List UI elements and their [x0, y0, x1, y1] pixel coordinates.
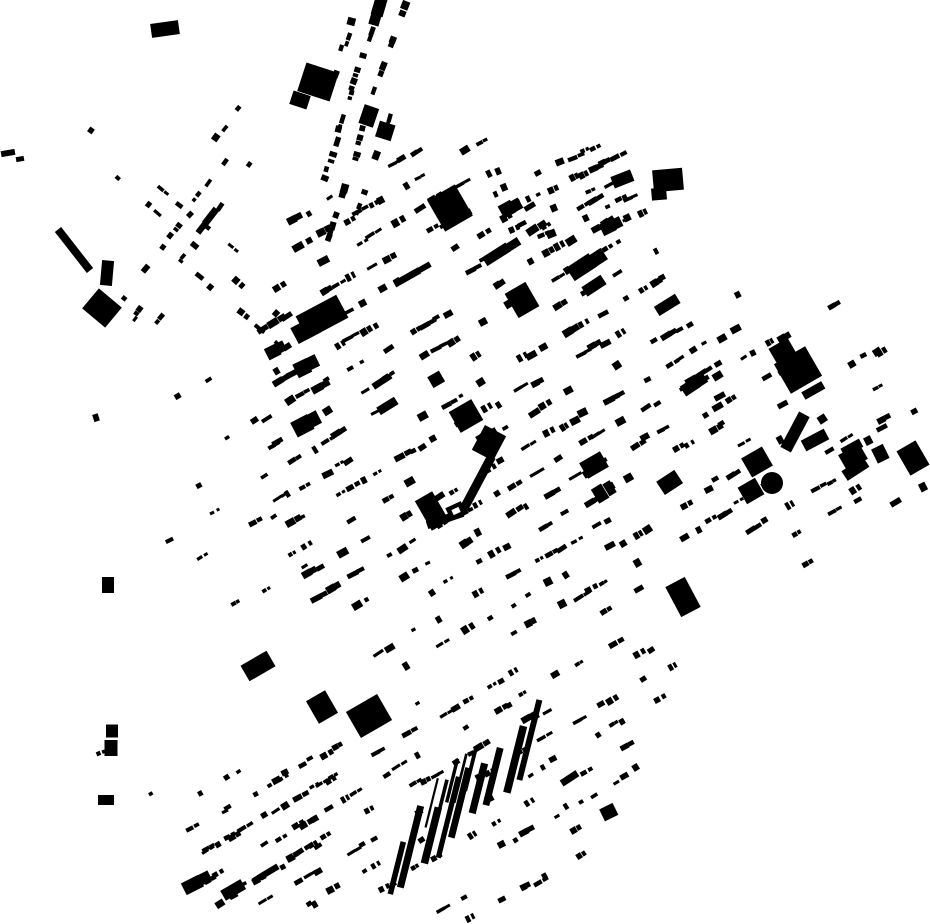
- west-dot-2: [106, 725, 118, 738]
- nw-small-tower: [100, 260, 114, 286]
- west-dot-4: [98, 795, 114, 805]
- west-dot-3: [105, 740, 118, 756]
- ne-l-building-2: [651, 187, 667, 200]
- figure-ground-page: Figure-ground map: black building footpr…: [0, 0, 930, 924]
- tank-circle: [761, 472, 783, 494]
- figure-ground-map: Figure-ground map: black building footpr…: [0, 0, 930, 924]
- west-dot-1: [102, 577, 114, 593]
